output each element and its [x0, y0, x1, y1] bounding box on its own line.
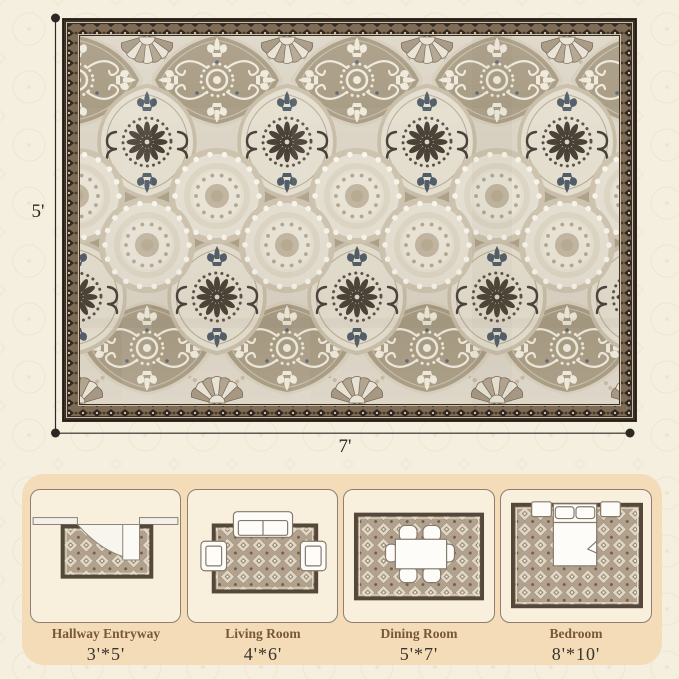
room-size-label: 8'*10' — [500, 644, 652, 665]
room-caption: Living Room 4'*6' — [187, 626, 339, 664]
room-name-label: Living Room — [187, 626, 339, 642]
bed — [553, 504, 596, 566]
room-name-label: Hallway Entryway — [30, 626, 182, 642]
sofa — [233, 512, 292, 538]
room-illustration-dining-room — [344, 490, 494, 622]
room-size-label: 5'*7' — [343, 644, 495, 665]
armchair — [300, 541, 326, 571]
room-illustration-bedroom — [501, 490, 651, 622]
room-size-label: 4'*6' — [187, 644, 339, 665]
dining-table — [395, 539, 446, 569]
rug-image — [62, 18, 637, 422]
product-image: 5' 7' — [0, 0, 679, 679]
width-dimension-label: 7' — [325, 436, 365, 458]
room-card-dining-room — [343, 489, 495, 623]
room-name-label: Dining Room — [343, 626, 495, 642]
room-size-label: 3'*5' — [30, 644, 182, 665]
room-card-bedroom — [500, 489, 652, 623]
height-dimension-label: 5' — [26, 201, 50, 223]
room-name-label: Bedroom — [500, 626, 652, 642]
room-card-hallway-entryway — [30, 489, 181, 623]
wall — [33, 518, 178, 525]
room-illustration-hallway — [31, 490, 180, 622]
room-illustration-living-room — [188, 490, 337, 622]
rug-field — [62, 31, 637, 409]
armchair — [201, 541, 227, 571]
room-card-living-room — [187, 489, 338, 623]
room-caption: Hallway Entryway 3'*5' — [30, 626, 182, 664]
room-caption: Bedroom 8'*10' — [500, 626, 652, 664]
room-caption: Dining Room 5'*7' — [343, 626, 495, 664]
